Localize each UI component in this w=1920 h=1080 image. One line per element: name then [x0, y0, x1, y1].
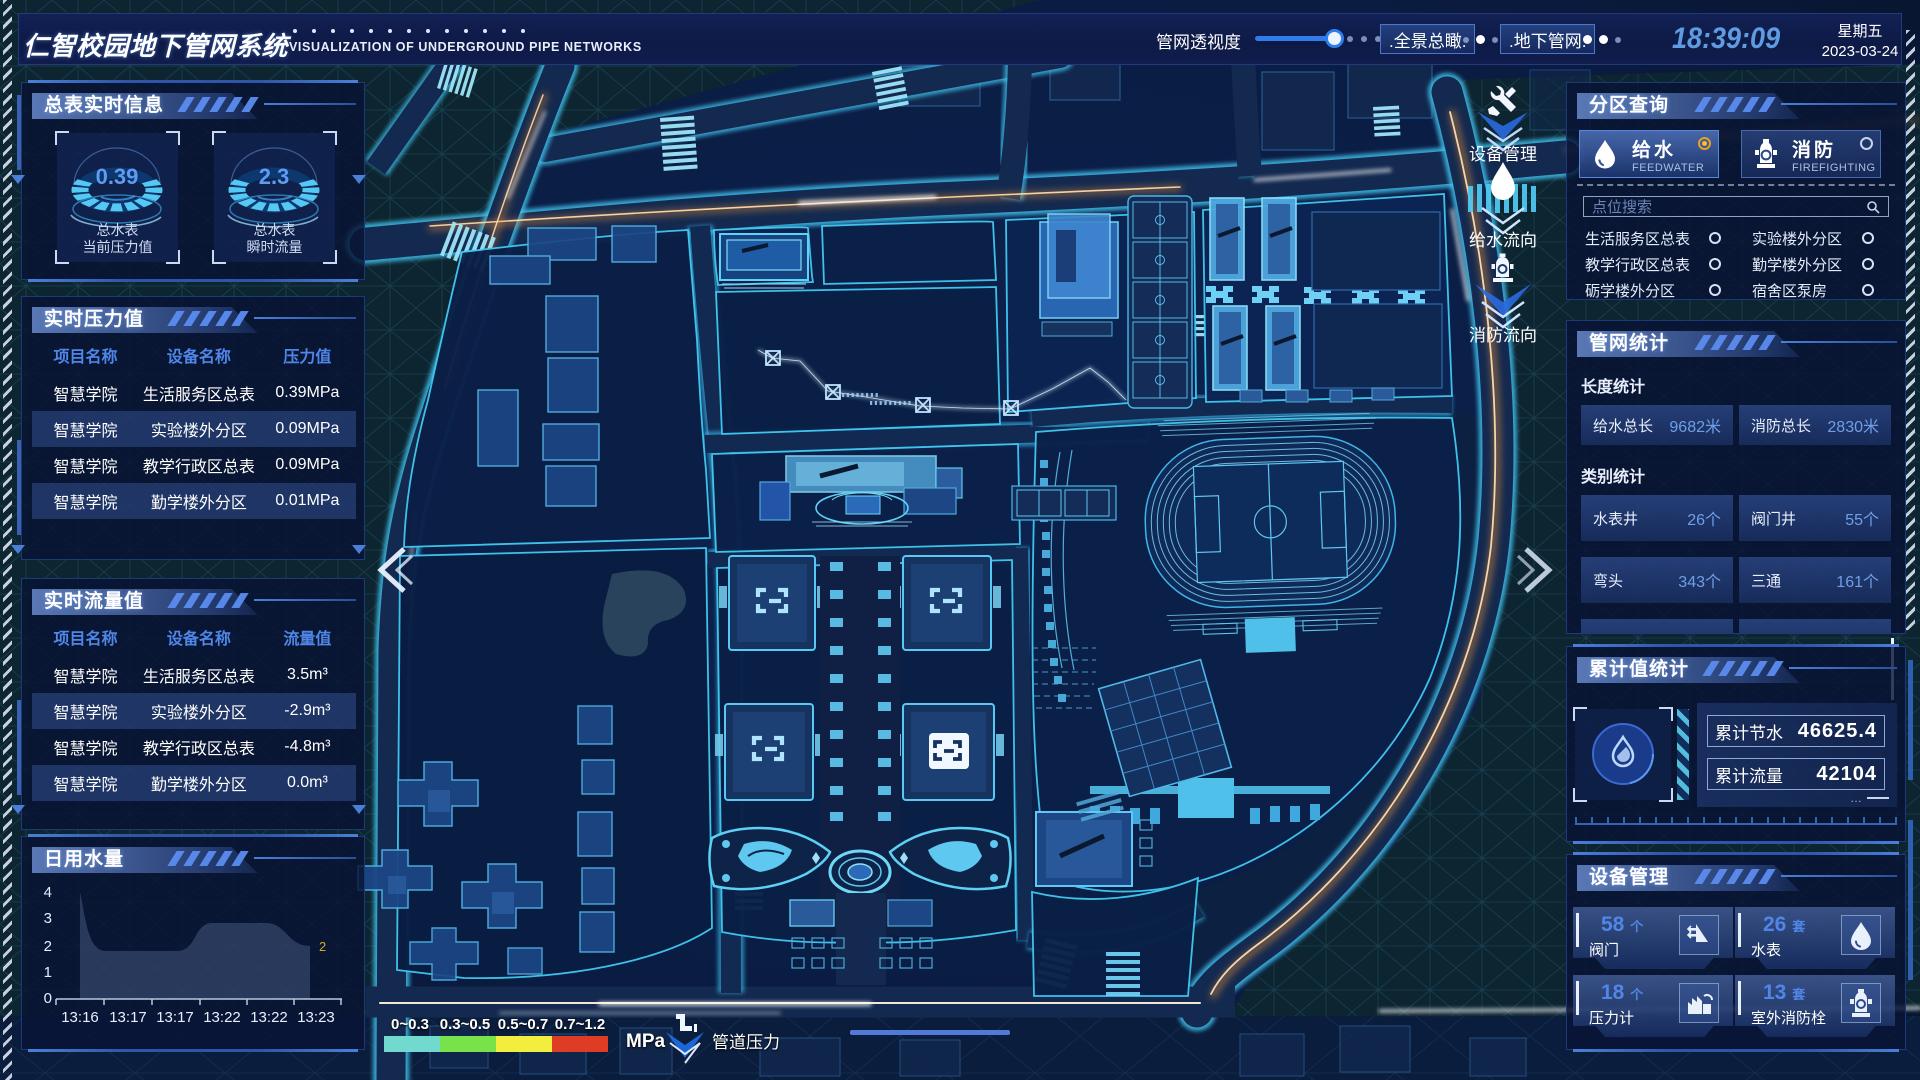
- svg-text:4: 4: [44, 884, 52, 901]
- svg-text:0: 0: [44, 990, 52, 1007]
- svg-text:2.3: 2.3: [259, 164, 290, 189]
- svg-text:给水流向: 给水流向: [1469, 231, 1537, 250]
- svg-text:2: 2: [44, 938, 52, 955]
- svg-text:设备管理: 设备管理: [1469, 145, 1537, 164]
- svg-text:13:17: 13:17: [156, 1009, 194, 1026]
- svg-text:2: 2: [319, 939, 326, 954]
- svg-text:13:22: 13:22: [203, 1009, 241, 1026]
- svg-text:13:22: 13:22: [250, 1009, 288, 1026]
- svg-text:1: 1: [44, 964, 52, 981]
- svg-text:3: 3: [44, 910, 52, 927]
- svg-text:消防流向: 消防流向: [1469, 326, 1537, 345]
- svg-text:13:17: 13:17: [109, 1009, 147, 1026]
- svg-text:13:16: 13:16: [61, 1009, 99, 1026]
- svg-text:13:23: 13:23: [297, 1009, 335, 1026]
- svg-text:0.39: 0.39: [96, 164, 139, 189]
